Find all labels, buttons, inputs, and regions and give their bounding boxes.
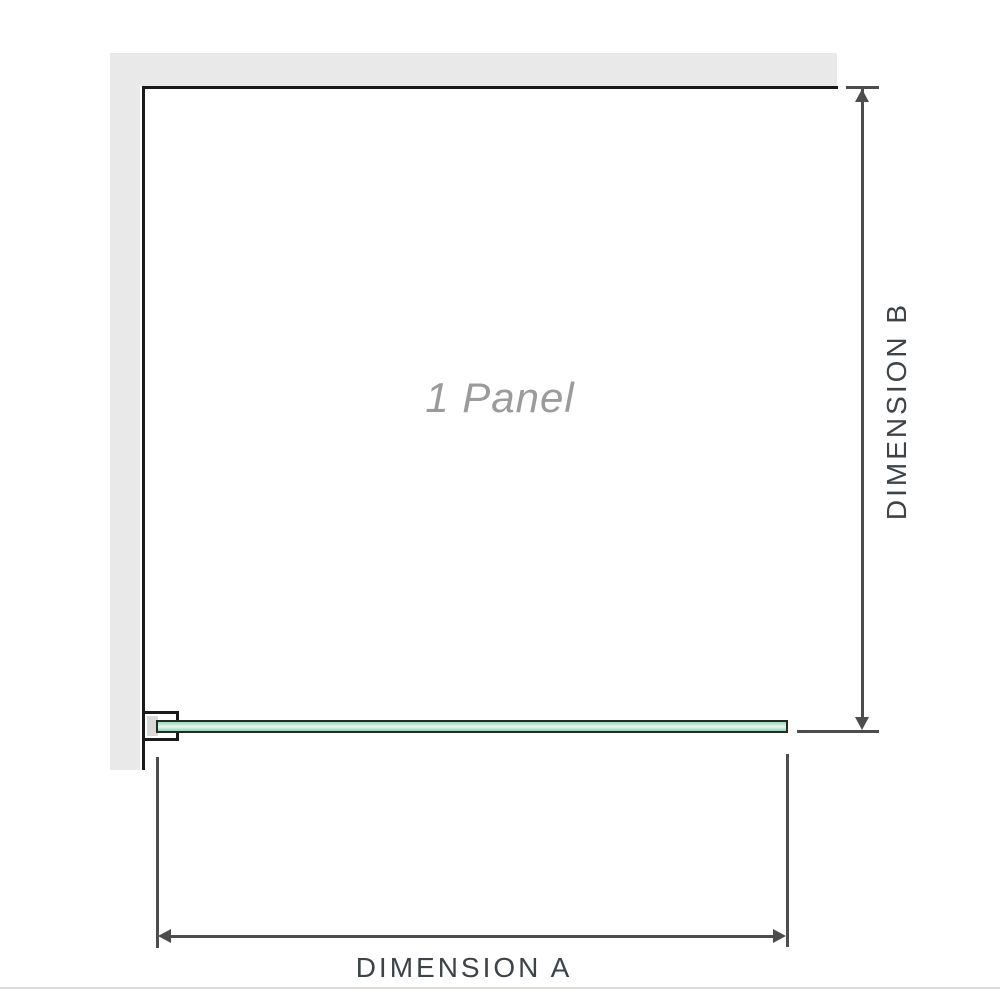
- arrow-left-icon: [158, 929, 171, 943]
- dimension-a-label: DIMENSION A: [264, 951, 664, 985]
- wall-top: [110, 53, 837, 86]
- dimension-a-right-extension: [786, 754, 789, 947]
- dimension-a-line: [170, 935, 774, 938]
- arrow-up-icon: [855, 89, 869, 102]
- panel-count-watermark: 1 Panel: [300, 370, 700, 426]
- arrow-down-icon: [855, 717, 869, 730]
- arrow-right-icon: [773, 929, 786, 943]
- glass-panel: [156, 720, 788, 733]
- shower-panel-dimension-diagram: 1 Panel DIMENSION B DIMENSION A: [0, 0, 1000, 1000]
- dimension-b-bottom-extension: [797, 730, 879, 733]
- dimension-a-left-extension: [156, 757, 159, 948]
- dimension-b-label: DIMENSION B: [882, 211, 912, 611]
- dimension-b-line: [861, 89, 864, 719]
- wall-top-inner-edge: [142, 86, 838, 89]
- wall-left: [110, 53, 140, 770]
- image-bottom-divider: [0, 987, 1000, 989]
- wall-left-inner-edge: [142, 86, 145, 770]
